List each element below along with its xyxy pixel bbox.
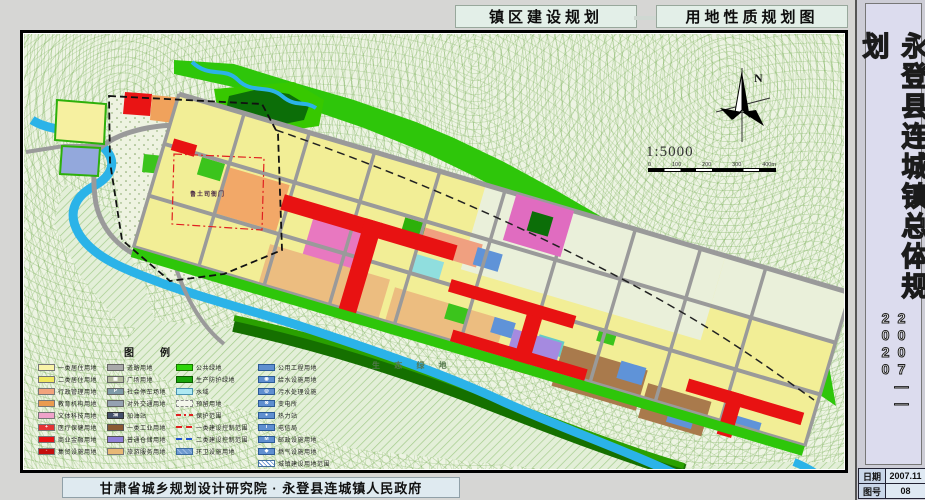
legend-label: 广场用地 xyxy=(127,375,153,384)
legend-label: 环卫设施用地 xyxy=(196,447,235,456)
scale-tick: 300 xyxy=(732,162,741,168)
land-use-map[interactable]: 鲁土司衙门 生 态 绿 地 N 1:5000 0100200300400m 图 … xyxy=(24,34,844,469)
legend-item: 城镇建设用地范围 xyxy=(258,458,330,468)
title-block-sidebar: 永登县连城镇总体规划 2007——2020 日期 2007.11 图号 08 xyxy=(855,0,925,500)
legend-column-3: 公共绿地 生产防护绿地 水域 xyxy=(176,362,248,468)
legend-swatch: 油 xyxy=(107,412,124,419)
legend-label: 一类建设控制范围 xyxy=(196,423,248,432)
legend-item: 二类建设控制范围 xyxy=(176,434,248,444)
legend-label: 变电所 xyxy=(278,399,298,408)
legend-label: 旅游服务用地 xyxy=(127,447,166,456)
legend-swatch xyxy=(38,412,55,419)
scale-box: 1:5000 0100200300400m xyxy=(646,144,806,172)
legend-item: ◦ 集贸设施用地 xyxy=(38,446,97,456)
map-frame: 鲁土司衙门 生 态 绿 地 N 1:5000 0100200300400m 图 … xyxy=(20,30,848,473)
legend-item: 旅游服务用地 xyxy=(107,446,166,456)
legend-label: 商业金融用地 xyxy=(58,435,97,444)
scale-bar xyxy=(648,168,776,172)
legend-item: 商业金融用地 xyxy=(38,434,97,444)
sheet-info-row: 日期 2007.11 xyxy=(859,469,925,484)
legend-item: 一类建设控制范围 xyxy=(176,422,248,432)
legend-item: 预留用地 xyxy=(176,398,248,408)
legend-label: 加油站 xyxy=(127,411,147,420)
legend-item: 水域 xyxy=(176,386,248,396)
legend-swatch xyxy=(176,376,193,383)
legend-swatch: ◦ xyxy=(38,448,55,455)
plan-years-vertical: 2007——2020 xyxy=(878,310,910,464)
legend-label: 集贸设施用地 xyxy=(58,447,97,456)
legend-item: ● 热力站 xyxy=(258,410,330,420)
legend-swatch: ● xyxy=(258,412,275,419)
credit-bar: 甘肃省城乡规划设计研究院 · 永登县连城镇人民政府 xyxy=(62,477,460,498)
legend-item: T 电信局 xyxy=(258,422,330,432)
legend-item: 环卫设施用地 xyxy=(176,446,248,456)
legend-item: 生产防护绿地 xyxy=(176,374,248,384)
scale-ratio: 1:5000 xyxy=(646,144,806,161)
legend-label: 邮政设施用地 xyxy=(278,435,317,444)
legend-swatch xyxy=(107,400,124,407)
legend-swatch xyxy=(176,414,193,416)
legend: 图 例 一类居住用地 二类居住用地 xyxy=(38,344,338,468)
sheet-info-label: 图号 xyxy=(859,484,886,499)
legend-swatch xyxy=(258,460,275,467)
eco-green-label: 生 态 绿 地 xyxy=(372,360,453,371)
legend-label: 医疗保健用地 xyxy=(58,423,97,432)
legend-label: 污水处理设施 xyxy=(278,387,317,396)
legend-label: 保护范围 xyxy=(196,411,222,420)
legend-label: 文体科技用地 xyxy=(58,411,97,420)
legend-swatch xyxy=(107,436,124,443)
sheet-info-value: 08 xyxy=(886,484,925,499)
legend-item: 一类居住用地 xyxy=(38,362,97,372)
plan-title-vertical: 永登县连城镇总体规划 xyxy=(855,32,925,304)
legend-label: 生产防护绿地 xyxy=(196,375,235,384)
legend-label: 普通仓储用地 xyxy=(127,435,166,444)
legend-title: 图 例 xyxy=(124,344,338,359)
legend-swatch xyxy=(176,426,193,428)
scale-tick: 0 xyxy=(648,162,651,168)
legend-label: 道路用地 xyxy=(127,363,153,372)
legend-swatch xyxy=(176,388,193,395)
legend-label: 社会停车场地 xyxy=(127,387,166,396)
legend-label: 教育机构用地 xyxy=(58,399,97,408)
sheet-info-row: 图号 08 xyxy=(859,484,925,499)
legend-item: + 医疗保健用地 xyxy=(38,422,97,432)
legend-swatch: + xyxy=(38,424,55,431)
legend-label: 一类工业用地 xyxy=(127,423,166,432)
legend-item: 文体科技用地 xyxy=(38,410,97,420)
legend-swatch: ◉ xyxy=(258,376,275,383)
legend-item: 油 加油站 xyxy=(107,410,166,420)
sheet-info-value: 2007.11 xyxy=(886,469,925,484)
legend-swatch xyxy=(176,364,193,371)
legend-swatch: ▦ xyxy=(107,376,124,383)
legend-item: M 邮政设施用地 xyxy=(258,434,330,444)
legend-item: ◆ 燃气设施用地 xyxy=(258,446,330,456)
legend-swatch xyxy=(107,424,124,431)
legend-swatch xyxy=(38,436,55,443)
legend-swatch xyxy=(176,438,193,440)
scale-tick: 400m xyxy=(762,162,776,168)
legend-item: 保护范围 xyxy=(176,410,248,420)
heritage-site-label: 鲁土司衙门 xyxy=(190,189,225,198)
sheet-info-table: 日期 2007.11 图号 08 xyxy=(858,468,925,499)
legend-column-4: 公用工程用地 ◉ 给水设施用地 ◎ 污水处理设施 xyxy=(258,362,330,468)
legend-swatch: T xyxy=(258,424,275,431)
legend-column-1: 一类居住用地 二类居住用地 行政管理用地 xyxy=(38,362,97,468)
legend-item: ◉ 给水设施用地 xyxy=(258,374,330,384)
legend-swatch xyxy=(38,364,55,371)
legend-swatch xyxy=(258,364,275,371)
legend-label: 一类居住用地 xyxy=(58,363,97,372)
legend-item: 公共绿地 xyxy=(176,362,248,372)
legend-label: 行政管理用地 xyxy=(58,387,97,396)
legend-swatch xyxy=(107,448,124,455)
legend-item: 普通仓储用地 xyxy=(107,434,166,444)
scale-tick: 100 xyxy=(672,162,681,168)
legend-swatch xyxy=(38,400,55,407)
legend-item: ⊗ 变电所 xyxy=(258,398,330,408)
title-tab-construction-plan: 镇区建设规划 xyxy=(455,5,637,28)
legend-label: 公共绿地 xyxy=(196,363,222,372)
legend-item: 一类工业用地 xyxy=(107,422,166,432)
legend-swatch xyxy=(176,400,193,407)
legend-swatch: P xyxy=(107,388,124,395)
legend-label: 电信局 xyxy=(278,423,298,432)
legend-item: 行政管理用地 xyxy=(38,386,97,396)
scale-tick: 200 xyxy=(702,162,711,168)
north-letter: N xyxy=(754,71,763,85)
legend-label: 公用工程用地 xyxy=(278,363,317,372)
legend-label: 给水设施用地 xyxy=(278,375,317,384)
legend-column-2: 道路用地 ▦ 广场用地 P 社会停车场地 xyxy=(107,362,166,468)
legend-swatch xyxy=(38,376,55,383)
legend-label: 预留用地 xyxy=(196,399,222,408)
legend-label: 水域 xyxy=(196,387,209,396)
legend-swatch: ◆ xyxy=(258,448,275,455)
legend-swatch xyxy=(176,448,193,455)
legend-swatch: M xyxy=(258,436,275,443)
legend-item: 二类居住用地 xyxy=(38,374,97,384)
legend-label: 二类建设控制范围 xyxy=(196,435,248,444)
sidebar-panel: 永登县连城镇总体规划 2007——2020 xyxy=(865,3,922,465)
legend-swatch: ◎ xyxy=(258,388,275,395)
legend-item: 公用工程用地 xyxy=(258,362,330,372)
legend-label: 城镇建设用地范围 xyxy=(278,459,330,468)
legend-item: 教育机构用地 xyxy=(38,398,97,408)
plan-sheet: { "header": { "left_tab": "镇区建设规划", "rig… xyxy=(0,0,925,500)
legend-item: 道路用地 xyxy=(107,362,166,372)
legend-label: 燃气设施用地 xyxy=(278,447,317,456)
legend-label: 对外交通用地 xyxy=(127,399,166,408)
legend-item: 对外交通用地 xyxy=(107,398,166,408)
sheet-info-label: 日期 xyxy=(859,469,886,484)
legend-item: P 社会停车场地 xyxy=(107,386,166,396)
legend-item: ▦ 广场用地 xyxy=(107,374,166,384)
title-tab-landuse-map: 用地性质规划图 xyxy=(656,5,848,28)
north-arrow: N xyxy=(712,60,776,150)
legend-label: 二类居住用地 xyxy=(58,375,97,384)
legend-swatch xyxy=(38,388,55,395)
legend-label: 热力站 xyxy=(278,411,298,420)
legend-item: ◎ 污水处理设施 xyxy=(258,386,330,396)
legend-swatch xyxy=(107,364,124,371)
legend-swatch: ⊗ xyxy=(258,400,275,407)
